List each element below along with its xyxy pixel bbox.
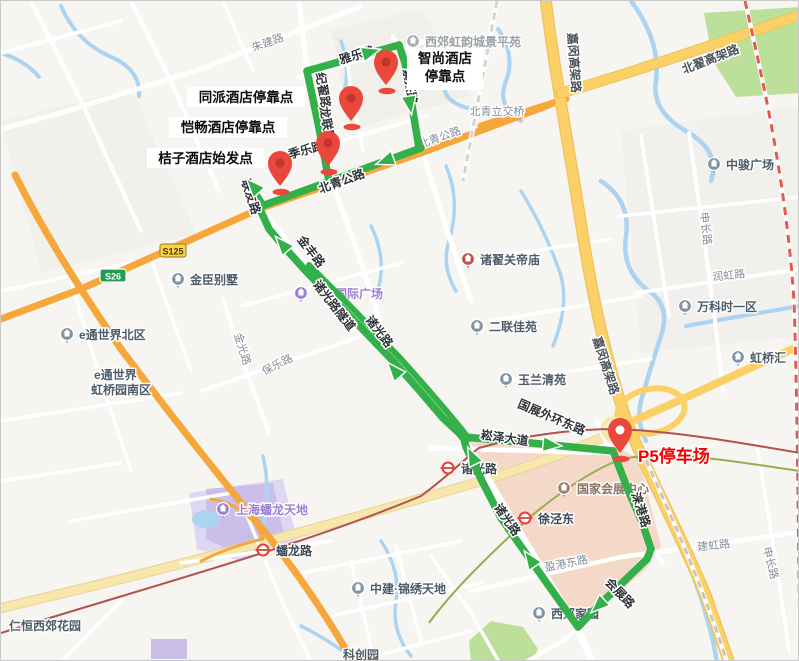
poi-glyph bbox=[475, 325, 480, 329]
road-label: 保乐路 bbox=[259, 351, 295, 378]
badge-text: S26 bbox=[105, 272, 121, 282]
poi-label: 西郊虹韵城景平苑 bbox=[425, 34, 521, 49]
poi-label: 虹桥汇 bbox=[750, 350, 786, 365]
poi-label: 二联佳苑 bbox=[489, 319, 537, 334]
poi-label: 玉兰清苑 bbox=[518, 372, 566, 387]
stop-label-zhishang: 智尚酒店停靠点 bbox=[407, 48, 483, 90]
poi-label: 仁恒西郊花园 bbox=[9, 618, 81, 633]
poi-label: 诸翟关帝庙 bbox=[480, 252, 540, 267]
metro-station-icon[interactable] bbox=[441, 463, 456, 474]
stop-label-kaichang: 恺畅酒店停靠点 bbox=[169, 117, 287, 137]
poi-glyph bbox=[176, 278, 181, 282]
poi-glyph bbox=[466, 258, 471, 262]
poi-glyph bbox=[683, 305, 688, 309]
stop-label-text: 恺畅酒店停靠点 bbox=[181, 119, 276, 135]
poi-label: 科创园 bbox=[343, 647, 379, 661]
pin-center-dot bbox=[276, 159, 285, 168]
poi-glyph bbox=[299, 292, 304, 296]
poi-label: 虹桥园南区 bbox=[91, 382, 151, 397]
poi-marker[interactable]: 金臣别墅 bbox=[172, 272, 239, 288]
poi-marker[interactable]: 仁恒西郊花园 bbox=[9, 618, 81, 633]
poi-marker[interactable]: 玉兰清苑 bbox=[500, 372, 567, 388]
poi-marker[interactable]: 科创园 bbox=[343, 647, 379, 661]
road-label: 国展外环东路 bbox=[516, 396, 589, 438]
pin-shadow bbox=[613, 456, 630, 462]
poi-label: 金臣别墅 bbox=[189, 272, 238, 287]
poi-glyph bbox=[504, 378, 509, 382]
poi-label: 上海蟠龙天地 bbox=[236, 502, 308, 517]
stop-label-text: 同派酒店停靠点 bbox=[199, 89, 294, 105]
pin-center-dot bbox=[616, 426, 625, 435]
poi-glyph bbox=[736, 356, 741, 360]
poi-label: 中骏广场 bbox=[726, 157, 774, 172]
poi-glyph bbox=[356, 587, 361, 591]
stop-label-tongpai: 同派酒店停靠点 bbox=[187, 87, 305, 107]
poi-marker[interactable]: 虹桥汇 bbox=[732, 350, 787, 366]
stop-label-text: 桔子酒店始发点 bbox=[158, 150, 253, 166]
poi-marker[interactable]: 诸翟关帝庙 bbox=[462, 252, 541, 268]
map-canvas[interactable]: 朱建路北青公路北青立交桥保乐路金光路盈港东路建虹路申长路申长路润虹路 诸光路徐泾… bbox=[1, 1, 799, 661]
p5-parking-label: P5停车场 bbox=[638, 446, 710, 466]
poi-glyph bbox=[411, 40, 416, 44]
pin-body bbox=[268, 151, 292, 186]
poi-glyph bbox=[712, 163, 717, 167]
poi-label: 万科时一区 bbox=[696, 299, 757, 314]
station-label: 徐泾东 bbox=[537, 511, 574, 526]
poi-marker[interactable]: 虹桥园南区 bbox=[91, 382, 151, 397]
poi-marker[interactable]: e通世界北区 bbox=[61, 327, 146, 343]
pin-center-dot bbox=[324, 139, 333, 148]
pin-center-dot bbox=[347, 94, 356, 103]
road-label: 嘉闵高架路 bbox=[565, 31, 584, 94]
pin-shadow bbox=[273, 189, 290, 195]
road-label: 北青立交桥 bbox=[470, 104, 525, 118]
road-label: 建虹路 bbox=[696, 536, 730, 553]
poi-marker[interactable]: e通世界 bbox=[94, 367, 137, 382]
poi-marker[interactable]: 中建·锦绣天地 bbox=[352, 581, 447, 597]
stop-label-text: 智尚酒店 bbox=[418, 50, 472, 66]
badge-text: S125 bbox=[162, 247, 183, 257]
road-label: 金光路 bbox=[231, 331, 254, 367]
stop-label-juzi: 桔子酒店始发点 bbox=[147, 148, 264, 168]
road-number-badge: S125 bbox=[160, 244, 186, 257]
pin-shadow bbox=[344, 124, 361, 130]
road-label: 朱建路 bbox=[250, 30, 286, 54]
station-label: 蟠龙路 bbox=[276, 543, 313, 558]
juzi-hotel-pin[interactable] bbox=[268, 151, 292, 195]
poi-label: 中建·锦绣天地 bbox=[370, 581, 446, 596]
pin-shadow bbox=[379, 88, 396, 94]
poi-glyph bbox=[537, 612, 542, 616]
poi-label: e通世界 bbox=[94, 367, 137, 382]
poi-glyph bbox=[221, 508, 226, 512]
pin-center-dot bbox=[382, 58, 391, 67]
poi-label: e通世界北区 bbox=[79, 327, 146, 342]
map-frame: 朱建路北青公路北青立交桥保乐路金光路盈港东路建虹路申长路申长路润虹路 诸光路徐泾… bbox=[0, 0, 799, 661]
pin-shadow bbox=[321, 169, 338, 175]
poi-marker[interactable]: 二联佳苑 bbox=[471, 319, 538, 335]
poi-glyph bbox=[65, 333, 70, 337]
stop-label-text: 停靠点 bbox=[425, 68, 466, 84]
poi-glyph bbox=[562, 487, 567, 491]
pin-body bbox=[316, 131, 340, 166]
road-number-badge: S26 bbox=[100, 269, 126, 282]
